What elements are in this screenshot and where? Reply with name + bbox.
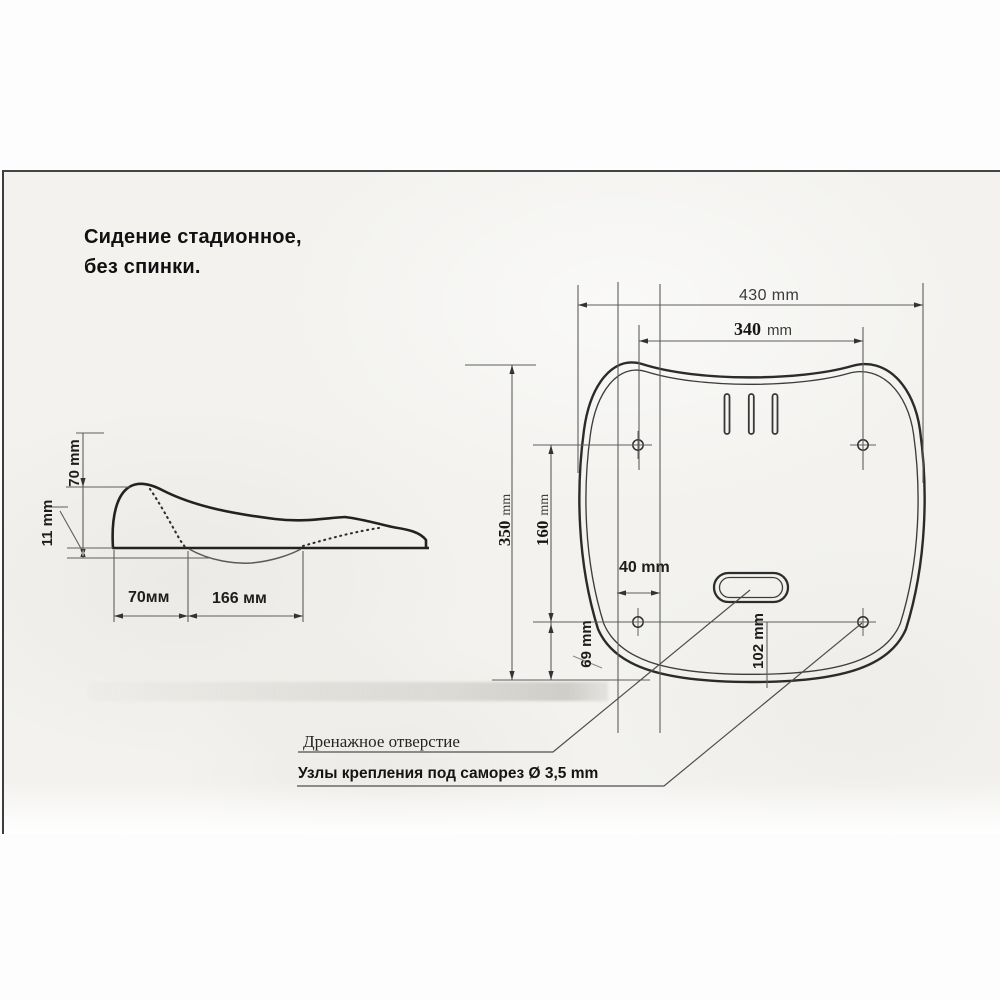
dim-hole-span-unit: mm [767,322,792,339]
dim-hole-depth-value: 160 [533,521,552,547]
callout-mount-points: Узлы крепления под саморез Ø 3,5 mm [298,765,598,783]
side-profile-underside-dip [189,549,301,563]
dim-drain-offset-102: 102 mm [750,610,768,672]
dim-slot-offset-40: 40 mm [619,559,670,577]
top-view [297,282,925,786]
dim-seat-lip-11: 11 mm [39,497,55,549]
callout-drain-hole: Дренажное отверстие [303,732,460,752]
dim-hole-depth-160: 160mm [533,488,553,552]
page-title-line2: без спинки. [84,256,201,279]
dim-hole-depth-unit: mm [537,494,552,516]
page-title-line1: Сидение стадионное, [84,226,302,249]
mounting-holes [625,431,876,636]
vent-slot [725,394,730,434]
dim-hole-span-value: 340 [734,319,761,339]
vent-slot [749,394,754,434]
scanned-drawing-page: Сидение стадионное, без спинки. 430 mm 3… [0,0,1000,1000]
dim-overall-depth-value: 350 [495,521,514,547]
side-profile-outline [113,484,426,548]
dim-front-width-70: 70мм [128,589,169,607]
dim-rear-offset-69: 69 mm [578,617,596,671]
drainage-hole [714,573,788,602]
dim-seat-height-70: 70 mm [66,437,82,489]
drain-leader-line [298,590,750,752]
dim-overall-depth-350: 350mm [495,488,515,552]
dim-hole-span-340: 340mm [734,319,792,340]
dim-overall-width-430: 430 mm [739,287,799,305]
side-hidden-line-rear [303,528,382,547]
ventilation-slots [725,394,778,434]
dim-mid-width-166: 166 мм [212,590,267,608]
dim-overall-depth-unit: mm [499,494,514,516]
vent-slot [773,394,778,434]
